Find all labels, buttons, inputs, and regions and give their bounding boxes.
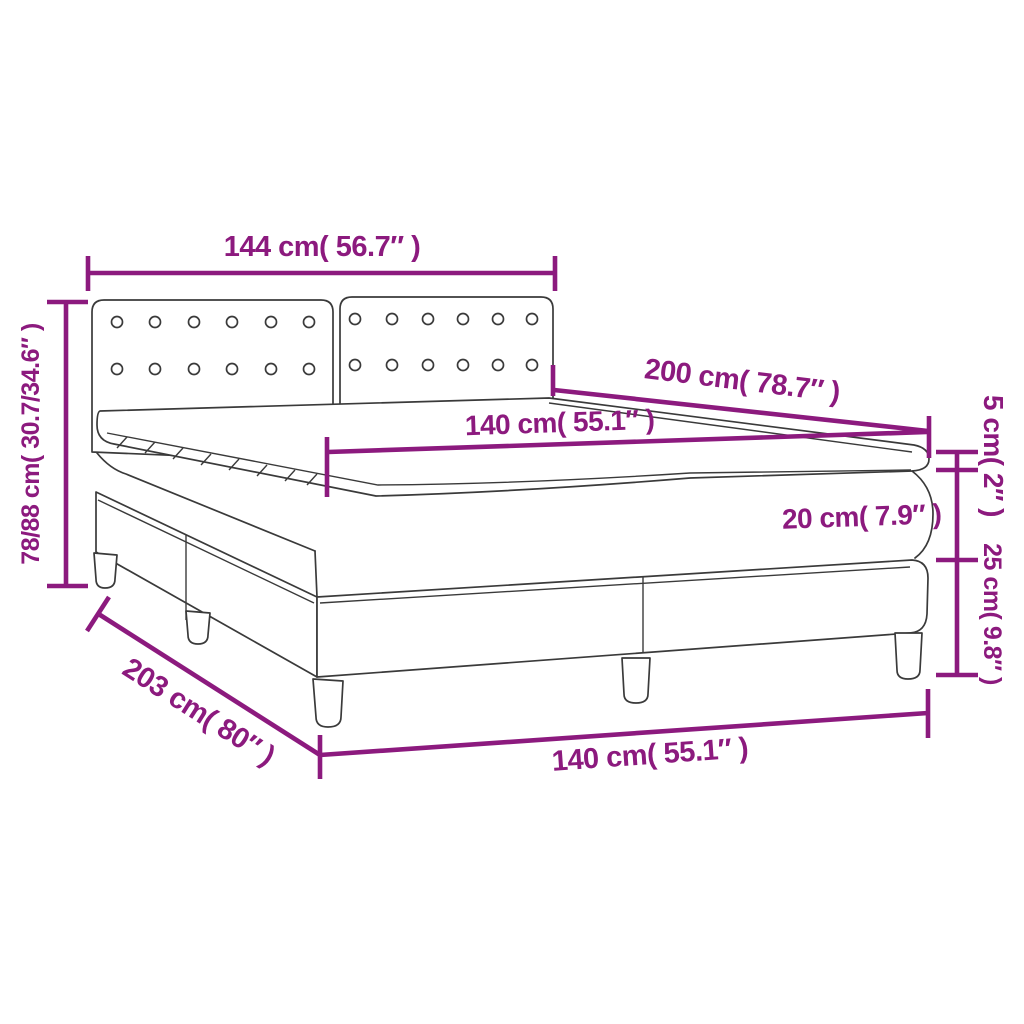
headboard-button: [189, 364, 200, 375]
headboard-button: [493, 314, 504, 325]
headboard-button: [189, 317, 200, 328]
diagram-canvas: 144 cm( 56.7″ ) 78/88 cm( 30.7/34.6″ ) 2…: [0, 0, 1024, 1024]
headboard-button: [527, 314, 538, 325]
dim-right-heights: 5 cm( 2″ ) 25 cm( 9.8″ ): [936, 395, 1009, 685]
bed-leg: [186, 611, 210, 644]
headboard-button: [387, 314, 398, 325]
dim-headboard-width: 144 cm( 56.7″ ): [88, 231, 555, 291]
dim-box-height-label: 25 cm( 9.8″ ): [978, 543, 1006, 685]
headboard-button: [150, 317, 161, 328]
headboard-button: [227, 364, 238, 375]
dim-tick: [87, 597, 109, 631]
headboard-button: [227, 317, 238, 328]
bed-leg: [622, 658, 650, 703]
dim-mattress-width-top-label: 140 cm( 55.1″ ): [464, 404, 655, 442]
headboard-button: [423, 360, 434, 371]
box-left-face: [96, 492, 317, 677]
dim-overall-height-label: 78/88 cm( 30.7/34.6″ ): [17, 323, 45, 565]
dim-mattress-height-label: 20 cm( 7.9″ ): [781, 498, 941, 535]
dim-bed-length-label: 200 cm( 78.7″ ): [643, 353, 842, 409]
headboard-button: [304, 364, 315, 375]
dim-mattress-width-bottom: 140 cm( 55.1″ ): [320, 689, 928, 778]
bed-dimension-diagram: 144 cm( 56.7″ ) 78/88 cm( 30.7/34.6″ ) 2…: [0, 0, 1024, 1024]
bed-leg: [895, 633, 922, 679]
headboard-button: [266, 364, 277, 375]
headboard-button: [304, 317, 315, 328]
headboard-button: [350, 360, 361, 371]
headboard-button: [387, 360, 398, 371]
dim-overall-height: 78/88 cm( 30.7/34.6″ ): [17, 302, 88, 586]
headboard-button: [493, 360, 504, 371]
headboard-button: [266, 317, 277, 328]
bed-leg: [94, 553, 117, 588]
dim-headboard-width-label: 144 cm( 56.7″ ): [224, 231, 421, 263]
bed-leg: [313, 679, 343, 727]
headboard-button: [150, 364, 161, 375]
headboard-button: [112, 364, 123, 375]
headboard-button: [112, 317, 123, 328]
headboard-button: [350, 314, 361, 325]
headboard-button: [458, 360, 469, 371]
dim-topper-height-label: 5 cm( 2″ ): [978, 395, 1009, 517]
headboard-button: [527, 360, 538, 371]
mattress-near-corner-edge: [315, 551, 317, 597]
headboard-button: [423, 314, 434, 325]
headboard-button: [458, 314, 469, 325]
